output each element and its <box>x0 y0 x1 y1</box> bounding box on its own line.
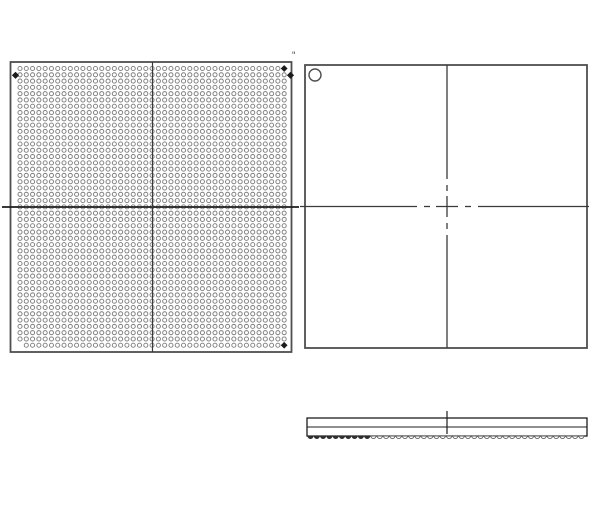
pin1-indicator-icon <box>309 69 321 81</box>
diamond-marker-icon <box>281 342 288 349</box>
pin-a1-corner-mark: " <box>291 51 297 61</box>
package-drawing-page: " <box>0 0 600 525</box>
diamond-marker-icon <box>287 72 294 79</box>
side-view <box>307 411 587 439</box>
package-drawing-svg <box>0 0 600 525</box>
diamond-marker-icon <box>281 65 288 72</box>
diamond-marker-icon <box>12 72 19 79</box>
top-view <box>300 65 589 348</box>
bottom-view <box>2 62 299 352</box>
